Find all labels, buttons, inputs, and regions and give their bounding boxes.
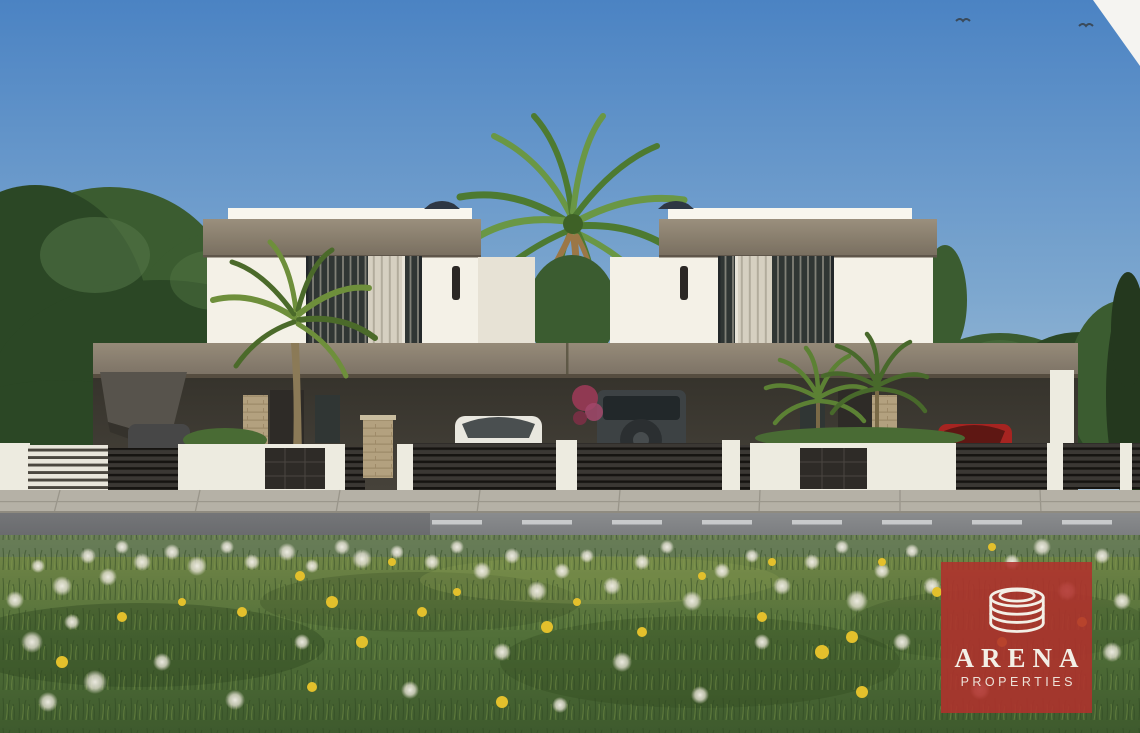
dandelion-puff: [745, 549, 759, 563]
dandelion-puff: [905, 544, 919, 558]
dandelion-puff: [305, 559, 319, 573]
yellow-dandelion: [541, 621, 553, 633]
wall-pier: [0, 443, 30, 497]
yellow-dandelion: [237, 607, 247, 617]
wall-sconce-right: [680, 266, 688, 300]
dandelion-puff: [278, 543, 296, 561]
dandelion-puff: [893, 633, 911, 651]
yellow-dandelion: [417, 607, 427, 617]
center-pier: [556, 440, 577, 496]
left-villa-fascia: [203, 219, 481, 257]
dandelion-puff: [682, 591, 702, 611]
stone-gate-pillar-left: [363, 418, 393, 478]
dandelion-puff: [31, 559, 45, 573]
dandelion-puff: [21, 631, 43, 653]
yellow-dandelion: [453, 588, 461, 596]
yellow-dandelion: [637, 627, 647, 637]
dandelion-puff: [691, 686, 709, 704]
dandelion-puff: [634, 554, 650, 570]
dandelion-puff: [1113, 592, 1131, 610]
dandelion-puff: [153, 653, 171, 671]
dandelion-puff: [754, 634, 770, 650]
yellow-dandelion: [988, 543, 996, 551]
yellow-dandelion: [496, 696, 508, 708]
dandelion-puff: [99, 568, 117, 586]
right-villa-fascia: [659, 219, 937, 257]
yellow-dandelion: [56, 656, 68, 668]
yellow-dandelion: [768, 558, 776, 566]
canopy-end-pier: [1050, 370, 1074, 450]
dandelion-puff: [660, 540, 674, 554]
yellow-dandelion: [295, 571, 305, 581]
yellow-dandelion: [856, 686, 868, 698]
white-slat-gate: [28, 445, 108, 492]
property-render-image: ARENA PROPERTIES: [0, 0, 1140, 733]
dandelion-puff: [1094, 548, 1110, 564]
right-villa: [658, 201, 937, 345]
yellow-dandelion: [878, 558, 886, 566]
yellow-dandelion: [846, 631, 858, 643]
watermark-arena-properties: ARENA PROPERTIES: [941, 562, 1092, 713]
dandelion-puff: [6, 591, 24, 609]
slat-gate-left-drive: [413, 443, 556, 490]
dandelion-puff: [603, 577, 621, 595]
dandelion-puff: [83, 670, 107, 694]
slat-gate-right-drive: [577, 443, 722, 490]
dandelion-puff: [294, 634, 310, 650]
dandelion-puff: [352, 549, 372, 569]
dandelion-puff: [244, 554, 260, 570]
dandelion-puff: [334, 539, 350, 555]
arena-rings-icon: [973, 583, 1061, 641]
yellow-dandelion: [388, 558, 396, 566]
dandelion-puff: [714, 563, 730, 579]
yellow-dandelion: [326, 596, 338, 608]
wall-inset-panel-left: [265, 448, 325, 489]
dandelion-puff: [64, 614, 80, 630]
ground-window-left: [315, 395, 340, 443]
dandelion-puff: [527, 581, 547, 601]
slat-fence: [108, 448, 180, 492]
dandelion-puff: [450, 540, 464, 554]
sidewalk: [0, 490, 1140, 514]
dandelion-puff: [52, 576, 72, 596]
wall-sconce-left: [452, 266, 460, 300]
watermark-brand-text: ARENA: [954, 645, 1085, 672]
dandelion-puff: [164, 544, 180, 560]
dandelion-puff: [225, 690, 245, 710]
yellow-dandelion: [178, 598, 186, 606]
dandelion-puff: [220, 540, 234, 554]
yellow-dandelion: [117, 612, 127, 622]
dandelion-puff: [424, 554, 440, 570]
dandelion-puff: [38, 692, 58, 712]
yellow-dandelion: [573, 598, 581, 606]
dandelion-puff: [133, 553, 151, 571]
dandelion-puff: [473, 562, 491, 580]
dandelion-puff: [804, 554, 820, 570]
dandelion-puff: [401, 681, 419, 699]
dandelion-puff: [552, 697, 568, 713]
dandelion-puff: [115, 540, 129, 554]
yellow-dandelion: [307, 682, 317, 692]
yellow-dandelion: [815, 645, 829, 659]
dandelion-puff: [580, 549, 594, 563]
dandelion-puff: [390, 545, 404, 559]
dandelion-puff: [835, 540, 849, 554]
dandelion-puff: [493, 643, 511, 661]
dandelion-puff: [554, 563, 570, 579]
yellow-dandelion: [757, 612, 767, 622]
yellow-dandelion: [698, 572, 706, 580]
watermark-tagline-text: PROPERTIES: [961, 674, 1076, 692]
right-villa-window: [718, 256, 834, 345]
dandelion-puff: [1033, 538, 1051, 556]
dandelion-puff: [1102, 642, 1122, 662]
dandelion-puff: [846, 590, 868, 612]
wall-inset-panel-right: [800, 448, 867, 489]
dandelion-puff: [80, 548, 96, 564]
dandelion-puff: [773, 577, 791, 595]
dandelion-puff: [612, 652, 632, 672]
dandelion-puff: [504, 548, 520, 564]
yellow-dandelion: [356, 636, 368, 648]
dandelion-puff: [187, 556, 207, 576]
